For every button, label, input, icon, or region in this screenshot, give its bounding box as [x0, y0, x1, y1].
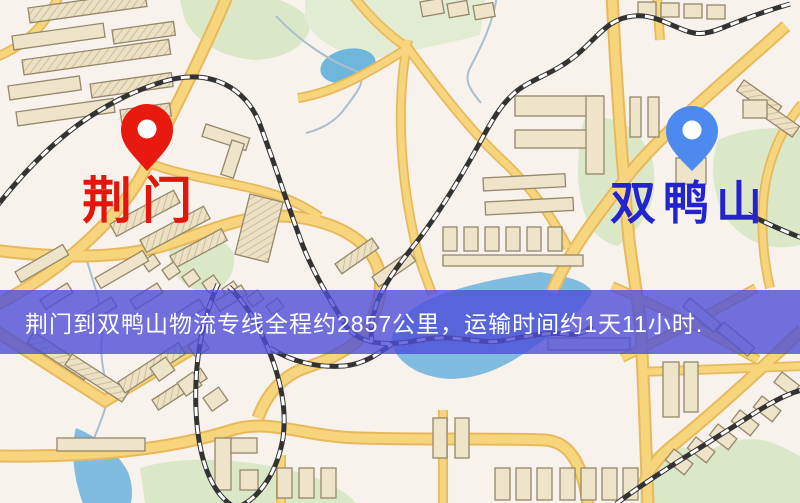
route-info-text: 荆门到双鸭山物流专线全程约2857公里，运输时间约1天11小时.: [25, 305, 703, 339]
destination-label: 双鸭山: [610, 180, 769, 226]
origin-label: 荆门: [82, 176, 202, 226]
map-canvas: [0, 0, 800, 503]
route-info-banner: 荆门到双鸭山物流专线全程约2857公里，运输时间约1天11小时.: [0, 290, 800, 354]
map-image: 荆门 双鸭山 荆门到双鸭山物流专线全程约2857公里，运输时间约1天11小时.: [0, 0, 800, 503]
